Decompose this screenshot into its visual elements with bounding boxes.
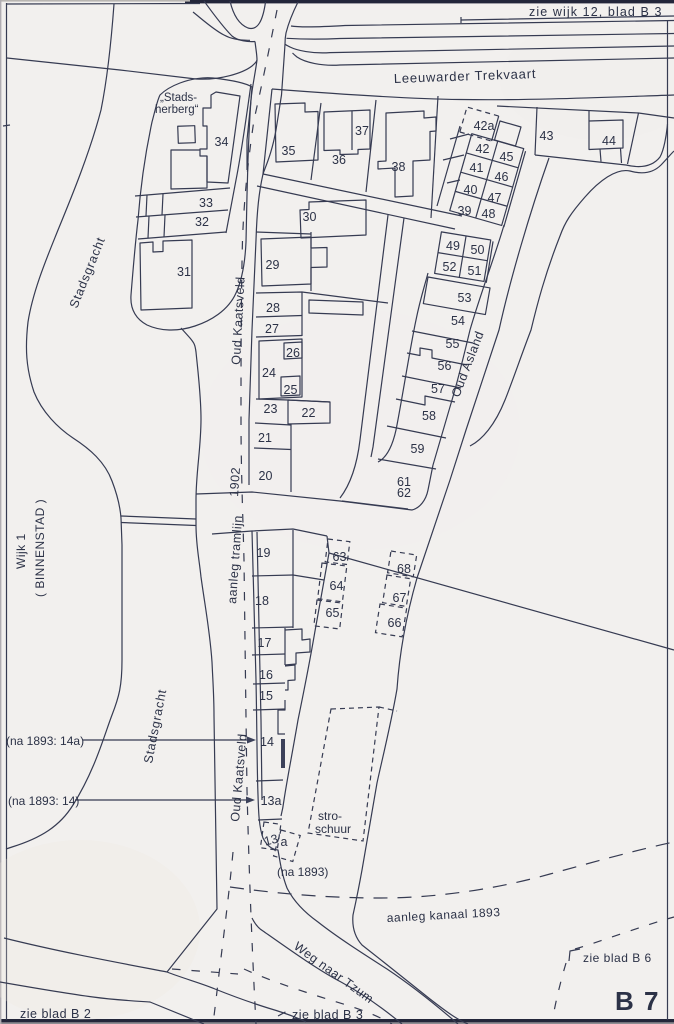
svg-text:zie blad B 3: zie blad B 3 xyxy=(292,1008,363,1022)
svg-text:a: a xyxy=(281,835,288,849)
svg-text:14: 14 xyxy=(260,735,274,749)
svg-text:58: 58 xyxy=(422,409,436,423)
svg-text:56: 56 xyxy=(438,359,452,373)
svg-text:zie blad B 2: zie blad B 2 xyxy=(20,1007,91,1021)
svg-text:66: 66 xyxy=(388,616,402,630)
svg-text:64: 64 xyxy=(330,579,344,593)
svg-text:45: 45 xyxy=(500,150,514,164)
svg-text:(na 1893: 14a): (na 1893: 14a) xyxy=(6,734,84,748)
svg-text:16: 16 xyxy=(259,668,273,682)
svg-text:schuur: schuur xyxy=(315,822,351,836)
svg-text:57: 57 xyxy=(431,382,445,396)
svg-text:23: 23 xyxy=(264,402,278,416)
svg-text:( BINNENSTAD ): ( BINNENSTAD ) xyxy=(33,499,47,597)
svg-text:44: 44 xyxy=(602,134,616,148)
svg-text:B 7: B 7 xyxy=(615,986,660,1016)
svg-text:65: 65 xyxy=(326,606,340,620)
svg-text:(na 1893: 14): (na 1893: 14) xyxy=(8,794,79,808)
svg-text:13a: 13a xyxy=(261,794,282,808)
svg-text:50: 50 xyxy=(471,243,485,257)
svg-text:24: 24 xyxy=(262,366,276,380)
svg-text:27: 27 xyxy=(265,322,279,336)
svg-text:48: 48 xyxy=(482,207,496,221)
svg-text:36: 36 xyxy=(332,153,346,167)
svg-text:55: 55 xyxy=(446,337,460,351)
svg-text:38: 38 xyxy=(392,160,406,174)
svg-text:15: 15 xyxy=(259,689,273,703)
svg-text:51: 51 xyxy=(468,264,482,278)
svg-text:29: 29 xyxy=(266,258,280,272)
svg-text:„Stads-: „Stads- xyxy=(160,92,197,104)
svg-text:33: 33 xyxy=(199,196,213,210)
svg-text:59: 59 xyxy=(411,442,425,456)
svg-text:stro-: stro- xyxy=(318,809,342,823)
svg-text:37: 37 xyxy=(355,124,369,138)
svg-text:35: 35 xyxy=(282,144,296,158)
svg-text:28: 28 xyxy=(266,301,280,315)
svg-text:62: 62 xyxy=(397,486,411,500)
svg-text:17: 17 xyxy=(258,636,272,650)
svg-text:Wijk 1: Wijk 1 xyxy=(14,533,28,569)
svg-text:20: 20 xyxy=(259,469,273,483)
svg-text:21: 21 xyxy=(258,431,272,445)
svg-text:47: 47 xyxy=(488,191,502,205)
svg-text:43: 43 xyxy=(540,129,554,143)
svg-text:52: 52 xyxy=(443,260,457,274)
svg-text:32: 32 xyxy=(195,215,209,229)
svg-text:18: 18 xyxy=(255,594,269,608)
svg-text:40: 40 xyxy=(464,183,478,197)
svg-text:34: 34 xyxy=(215,135,229,149)
svg-text:63: 63 xyxy=(333,550,347,564)
svg-text:54: 54 xyxy=(451,314,465,328)
svg-text:41: 41 xyxy=(470,161,484,175)
svg-text:(na 1893): (na 1893) xyxy=(277,865,328,879)
svg-text:22: 22 xyxy=(302,406,316,420)
svg-text:25: 25 xyxy=(284,383,298,397)
svg-text:1902: 1902 xyxy=(227,466,243,497)
svg-text:zie wijk 12, blad B 3: zie wijk 12, blad B 3 xyxy=(529,5,663,19)
svg-text:42a: 42a xyxy=(474,119,495,133)
svg-text:67: 67 xyxy=(393,591,407,605)
svg-text:68: 68 xyxy=(397,562,411,576)
svg-text:53: 53 xyxy=(458,291,472,305)
svg-text:herberg“: herberg“ xyxy=(155,104,199,116)
svg-text:42: 42 xyxy=(476,142,490,156)
svg-text:46: 46 xyxy=(495,170,509,184)
svg-text:39: 39 xyxy=(458,204,472,218)
svg-text:19: 19 xyxy=(257,546,271,560)
svg-text:49: 49 xyxy=(446,239,460,253)
svg-text:26: 26 xyxy=(286,346,300,360)
svg-text:zie blad B 6: zie blad B 6 xyxy=(583,951,652,965)
svg-text:30: 30 xyxy=(303,210,317,224)
svg-text:31: 31 xyxy=(177,265,191,279)
